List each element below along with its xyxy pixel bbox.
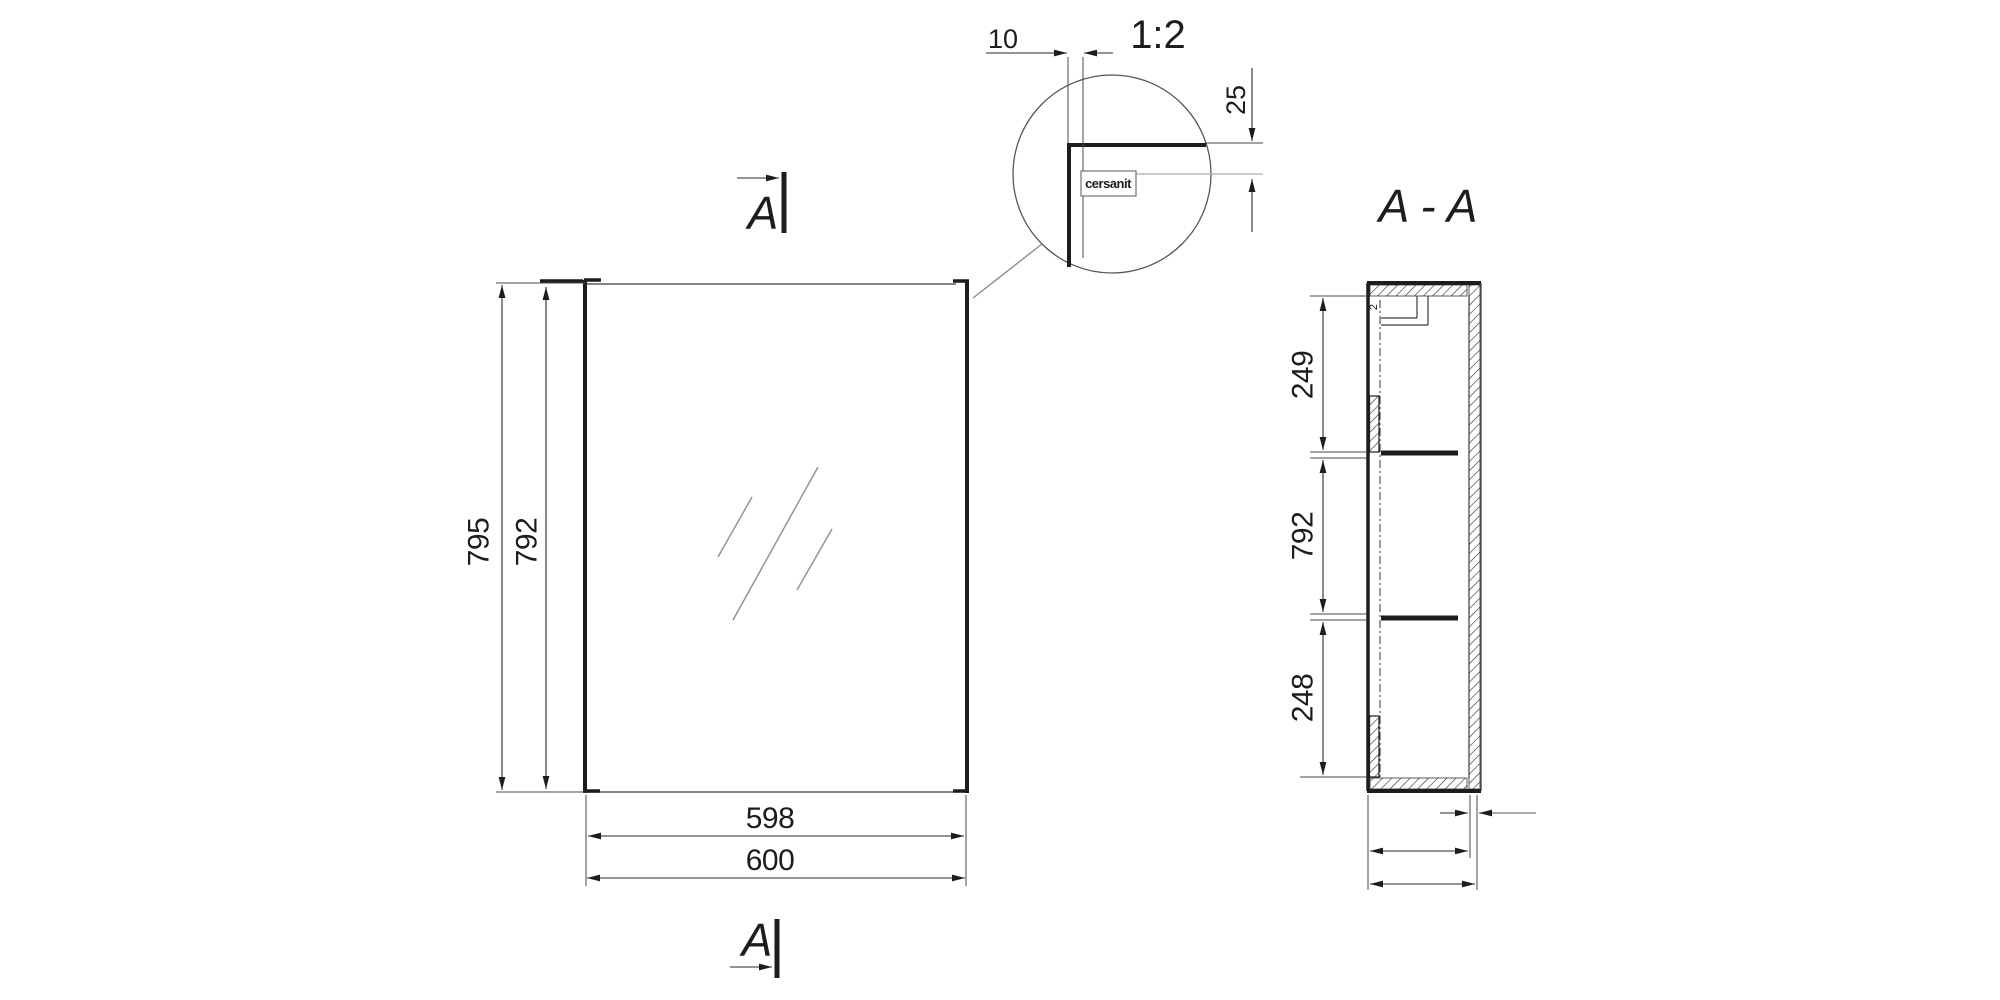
section-marker-bottom: A <box>730 914 777 978</box>
dim-label-25: 25 <box>1221 85 1251 115</box>
hinge-block-lower <box>1370 716 1380 777</box>
dim-label-792: 792 <box>1287 512 1320 561</box>
section-marker-top: A <box>737 172 784 239</box>
detail-view: 1:2 cersanit 10 25 <box>973 13 1263 298</box>
section-view: A - A 2 249 792 24 <box>1287 180 1537 890</box>
section-title: A - A <box>1376 180 1478 232</box>
mirror-reflection-line <box>797 529 832 590</box>
hinge-block-upper <box>1370 396 1380 452</box>
section-marker-letter: A <box>739 914 773 966</box>
logo-text: cersanit <box>1085 176 1132 191</box>
dim-label-795: 795 <box>463 518 496 567</box>
mirror-reflection-line <box>733 467 818 620</box>
detail-scale-label: 1:2 <box>1130 13 1186 57</box>
section-marker-letter: A <box>745 187 779 239</box>
dim-label-248: 248 <box>1287 674 1320 723</box>
dim-label-249: 249 <box>1287 351 1320 400</box>
dim-label-600: 600 <box>746 844 795 877</box>
technical-drawing: 795 792 598 600 A A 1:2 <box>0 0 2000 1000</box>
detail-leader-line <box>973 244 1042 298</box>
dim-label-598: 598 <box>746 802 795 835</box>
top-panel-hatch <box>1370 285 1467 296</box>
front-view: 795 792 598 600 A A <box>463 172 970 978</box>
mirror-reflection-line <box>718 497 752 557</box>
back-panel-hatch <box>1469 285 1480 789</box>
bottom-panel-hatch <box>1370 778 1467 789</box>
dim-label-10: 10 <box>988 24 1018 54</box>
dim-label-792: 792 <box>511 518 544 567</box>
dim-label-gap-2: 2 <box>1368 304 1380 310</box>
